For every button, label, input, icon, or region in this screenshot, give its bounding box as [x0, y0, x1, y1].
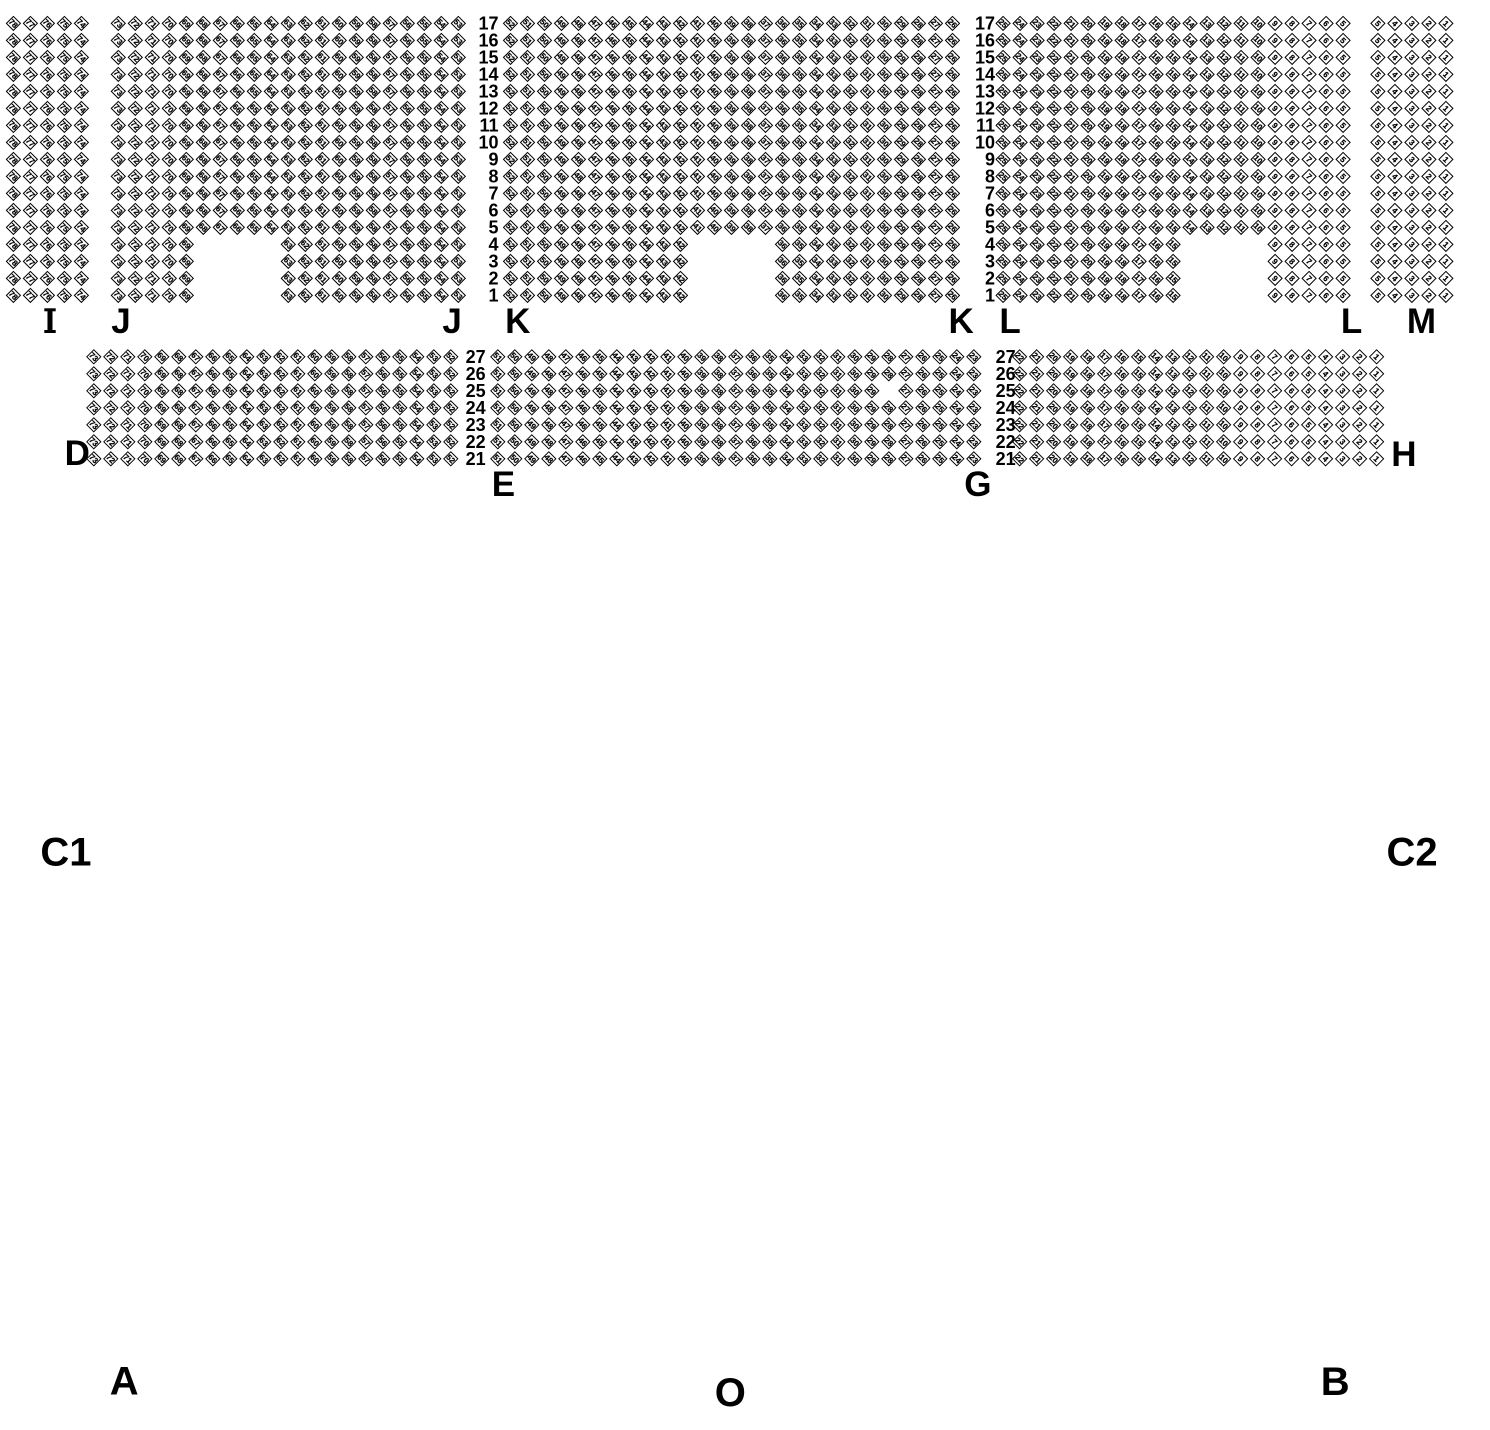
svg-text:C2: C2 — [1387, 830, 1438, 874]
svg-text:K: K — [948, 302, 973, 341]
svg-text:C1: C1 — [40, 830, 91, 874]
svg-text:21: 21 — [996, 449, 1016, 469]
svg-text:21: 21 — [466, 449, 486, 469]
svg-text:I: I — [45, 302, 55, 341]
svg-text:K: K — [505, 302, 530, 341]
svg-text:L: L — [999, 302, 1020, 341]
svg-text:L: L — [1341, 302, 1362, 341]
svg-text:M: M — [1407, 302, 1436, 341]
svg-text:1: 1 — [985, 286, 995, 306]
svg-text:D: D — [65, 434, 90, 473]
svg-text:O: O — [715, 1371, 746, 1415]
svg-text:1: 1 — [488, 286, 498, 306]
svg-text:E: E — [492, 465, 515, 504]
svg-text:H: H — [1391, 435, 1416, 474]
svg-text:A: A — [110, 1360, 139, 1404]
svg-text:J: J — [111, 302, 130, 341]
svg-text:G: G — [964, 465, 991, 504]
svg-text:J: J — [442, 302, 461, 341]
svg-text:B: B — [1321, 1360, 1350, 1404]
